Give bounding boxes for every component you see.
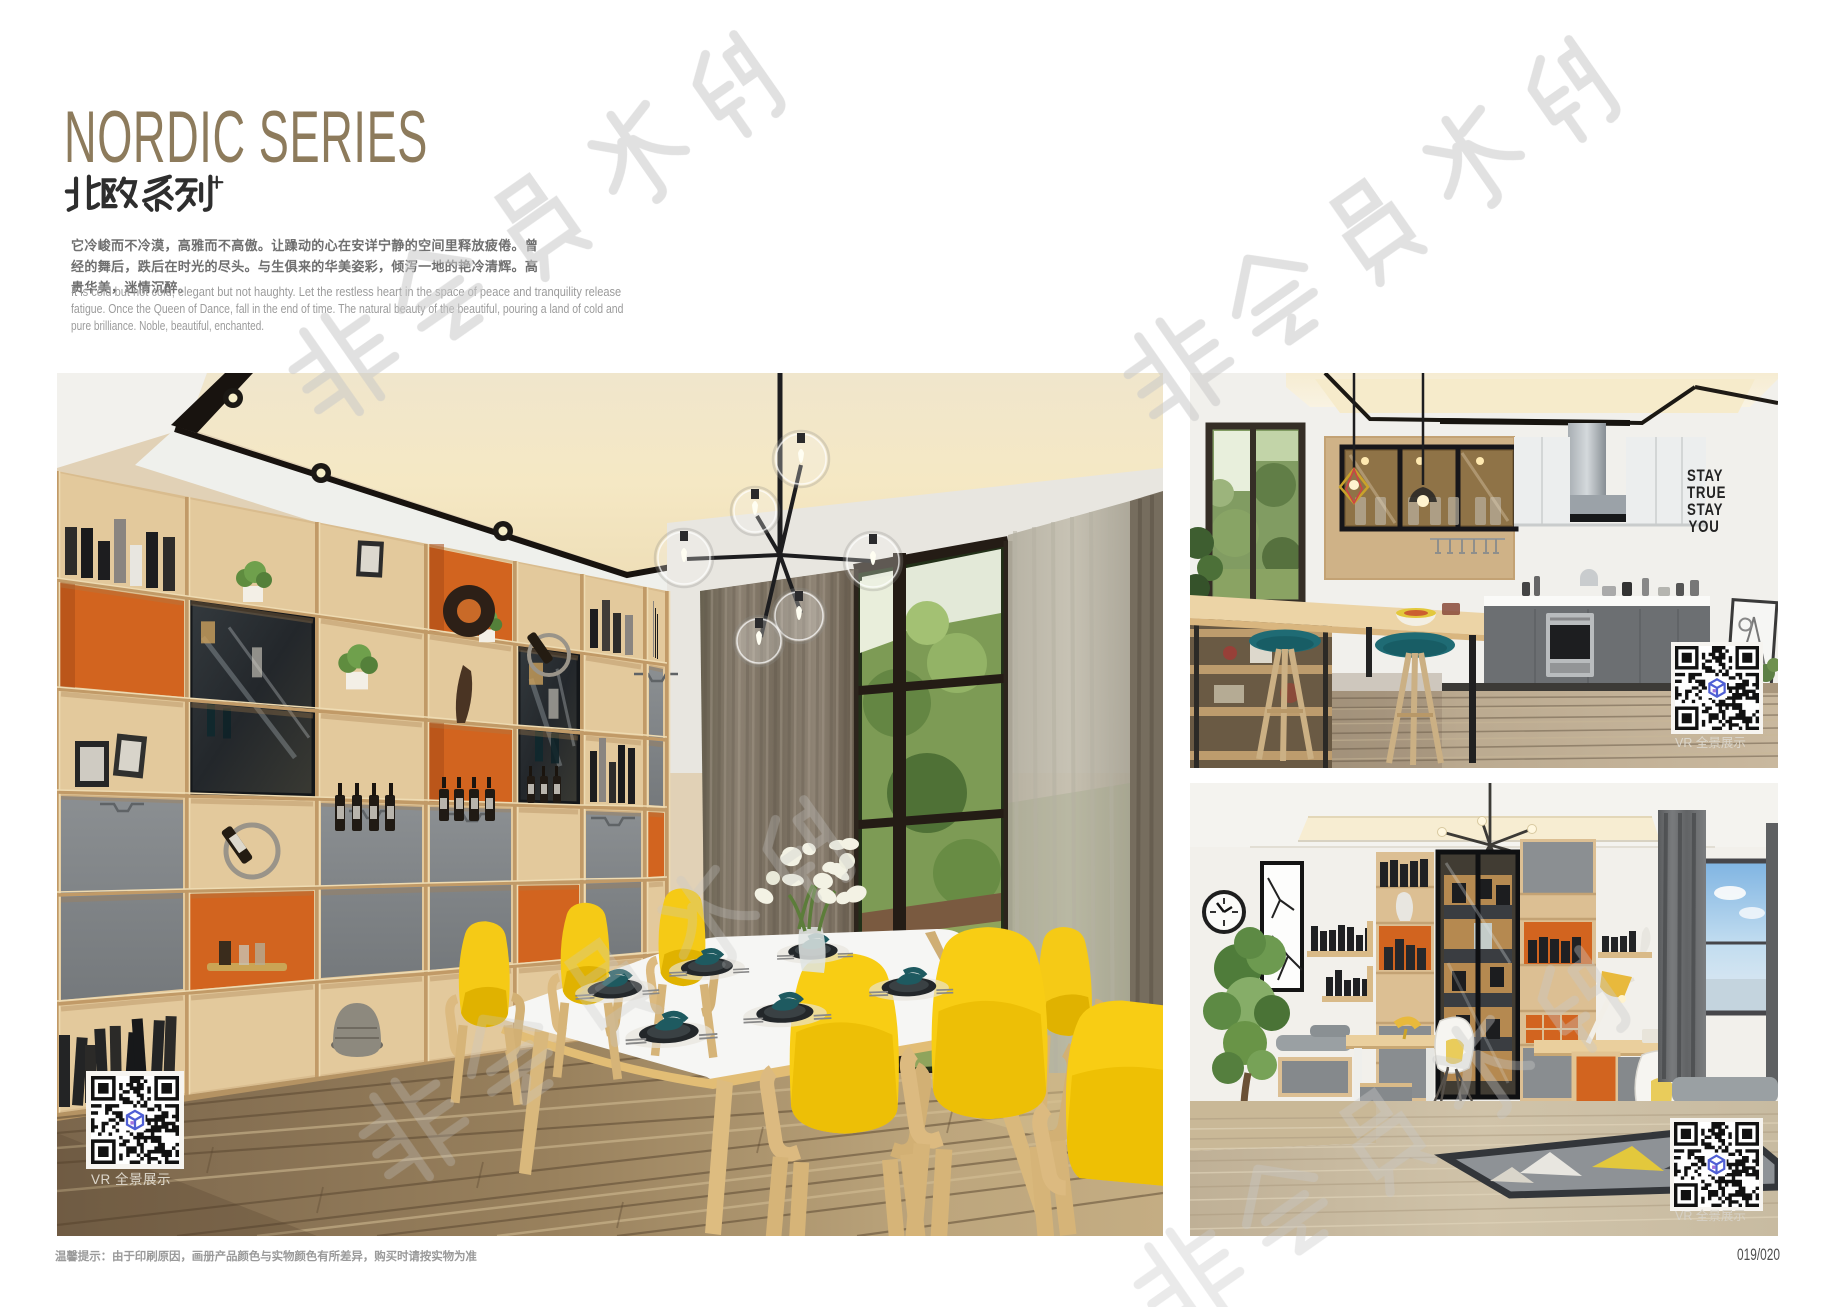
svg-text:VR 全景展示: VR 全景展示 bbox=[1675, 735, 1746, 750]
svg-text:YOU: YOU bbox=[1689, 518, 1720, 537]
svg-text:VR 全景展示: VR 全景展示 bbox=[1675, 1208, 1746, 1223]
svg-text:VR 全景展示: VR 全景展示 bbox=[91, 1171, 171, 1187]
